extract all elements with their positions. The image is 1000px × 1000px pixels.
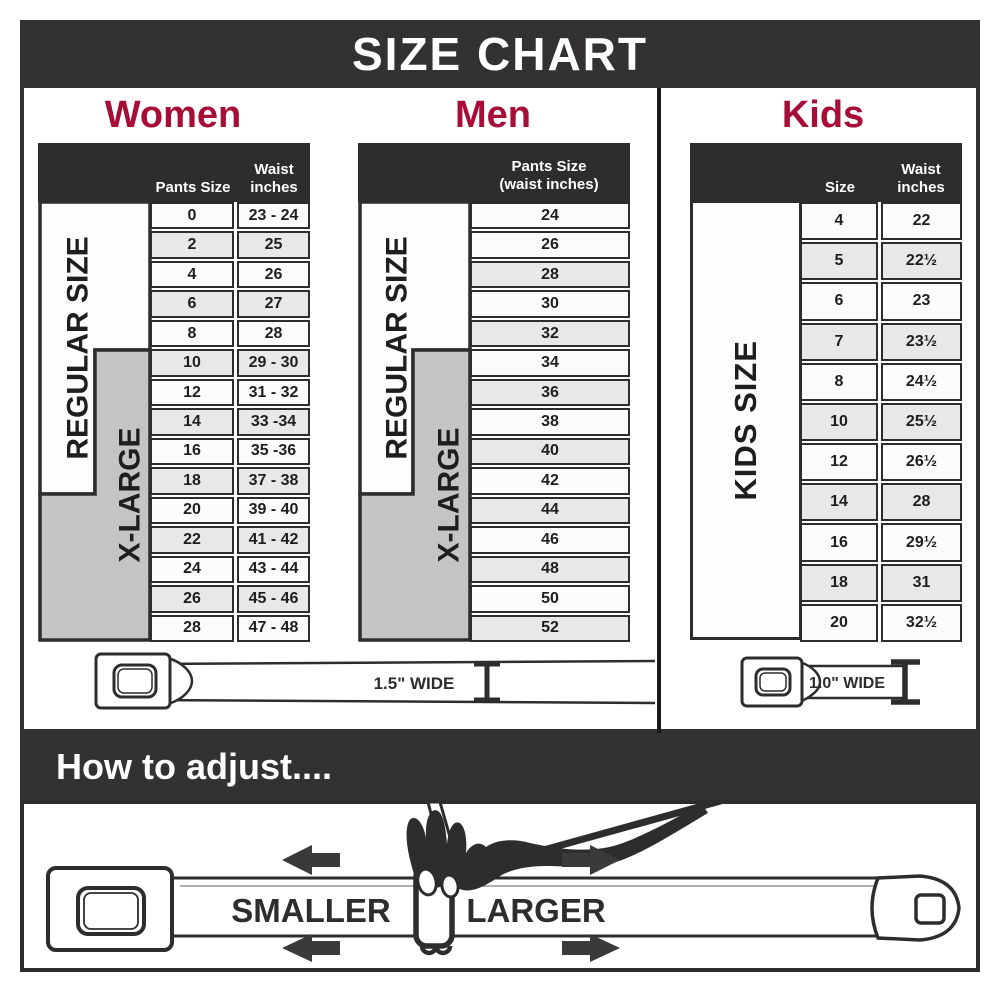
- table-cell: 8: [800, 363, 878, 401]
- kids-size-header: Size: [800, 179, 880, 197]
- table-cell: 25: [237, 231, 310, 258]
- table-cell: 16: [800, 523, 878, 561]
- table-cell: 24: [150, 556, 234, 583]
- table-cell: 31: [881, 564, 962, 602]
- table-cell: 46: [470, 526, 630, 553]
- adult-seatbelt-buckle-icon: [96, 654, 192, 708]
- table-cell: 20: [150, 497, 234, 524]
- table-cell: 47 - 48: [237, 615, 310, 642]
- page-title: SIZE CHART: [352, 27, 648, 81]
- arrow-right-bottom-icon: [562, 934, 620, 962]
- adult-belt-width-label: 1.5" WIDE: [374, 674, 455, 693]
- table-cell: 31 - 32: [237, 379, 310, 406]
- arrow-left-bottom-icon: [282, 934, 340, 962]
- table-cell: 41 - 42: [237, 526, 310, 553]
- table-cell: 39 - 40: [237, 497, 310, 524]
- table-cell: 24½: [881, 363, 962, 401]
- table-cell: 26: [470, 231, 630, 258]
- table-cell: 14: [800, 483, 878, 521]
- section-divider: [657, 88, 661, 733]
- table-cell: 43 - 44: [237, 556, 310, 583]
- table-cell: 42: [470, 467, 630, 494]
- how-to-adjust-banner: How to adjust....: [20, 733, 980, 800]
- women-xlarge-label: X-LARGE: [114, 428, 147, 563]
- table-cell: 28: [237, 320, 310, 347]
- table-cell: 24: [470, 202, 630, 229]
- table-cell: 6: [150, 290, 234, 317]
- women-table-header: Pants Size Waist inches: [38, 143, 310, 202]
- table-cell: 29 - 30: [237, 349, 310, 376]
- arrow-left-top-icon: [282, 845, 340, 875]
- table-cell: 22: [150, 526, 234, 553]
- table-cell: 36: [470, 379, 630, 406]
- table-cell: 33 -34: [237, 408, 310, 435]
- table-cell: 23: [881, 282, 962, 320]
- table-cell: 22½: [881, 242, 962, 280]
- men-table-header: Pants Size (waist inches): [358, 143, 630, 202]
- table-cell: 40: [470, 438, 630, 465]
- table-cell: 4: [150, 261, 234, 288]
- table-cell: 37 - 38: [237, 467, 310, 494]
- men-regular-size-label: REGULAR SIZE: [381, 236, 414, 459]
- table-cell: 35 -36: [237, 438, 310, 465]
- table-cell: 10: [150, 349, 234, 376]
- women-regular-size-label: REGULAR SIZE: [62, 236, 95, 459]
- men-size-table: 24 26 28 30 32 34 36 38 40 42 44 46 48 5…: [470, 202, 630, 642]
- table-cell: 14: [150, 408, 234, 435]
- size-chart-banner: SIZE CHART: [20, 20, 980, 88]
- table-cell: 6: [800, 282, 878, 320]
- table-cell: 25½: [881, 403, 962, 441]
- table-cell: 2: [150, 231, 234, 258]
- table-cell: 12: [800, 443, 878, 481]
- kids-table-header: Size Waist inches: [690, 143, 962, 202]
- table-cell: 23 - 24: [237, 202, 310, 229]
- kids-belt-illustration: 1.0" WIDE: [664, 648, 976, 728]
- men-section-heading: Men: [378, 94, 608, 137]
- table-cell: 29½: [881, 523, 962, 561]
- table-cell: 45 - 46: [237, 585, 310, 612]
- table-cell: 52: [470, 615, 630, 642]
- table-cell: 23½: [881, 323, 962, 361]
- women-size-range-labels: REGULAR SIZE X-LARGE: [38, 200, 152, 642]
- women-waist-header: Waist inches: [240, 161, 308, 197]
- table-cell: 34: [470, 349, 630, 376]
- table-cell: 26: [237, 261, 310, 288]
- adult-belt-illustration: 1.5" WIDE: [24, 648, 658, 728]
- how-to-adjust-title: How to adjust....: [56, 746, 332, 788]
- smaller-label: SMALLER: [231, 892, 391, 929]
- men-pants-size-header: Pants Size (waist inches): [470, 158, 628, 194]
- women-section-heading: Women: [58, 94, 288, 137]
- table-cell: 30: [470, 290, 630, 317]
- table-cell: 12: [150, 379, 234, 406]
- women-pants-size-header: Pants Size: [150, 179, 236, 197]
- table-cell: 38: [470, 408, 630, 435]
- kids-size-region: KIDS SIZE: [690, 200, 802, 640]
- table-cell: 8: [150, 320, 234, 347]
- size-chart-page: SIZE CHART Women Men Kids Pants Size Wai…: [0, 0, 1000, 1000]
- table-cell: 26: [150, 585, 234, 612]
- men-size-range-labels: REGULAR SIZE X-LARGE: [358, 200, 472, 642]
- table-cell: 16: [150, 438, 234, 465]
- kids-section-heading: Kids: [708, 94, 938, 137]
- table-cell: 20: [800, 604, 878, 642]
- women-size-table: 0 23 - 24 2 25 4 26 6 27 8 28 10 29 - 30…: [150, 202, 310, 642]
- table-cell: 28: [470, 261, 630, 288]
- adjust-illustration: SMALLER LARGER: [20, 800, 980, 972]
- table-cell: 32: [470, 320, 630, 347]
- larger-label: LARGER: [466, 892, 606, 929]
- table-cell: 28: [881, 483, 962, 521]
- kids-belt-width-label: 1.0" WIDE: [809, 675, 885, 692]
- adjust-seatbelt-buckle-icon: [48, 868, 172, 950]
- table-cell: 48: [470, 556, 630, 583]
- belt-tip-icon: [872, 876, 959, 940]
- table-cell: 28: [150, 615, 234, 642]
- table-cell: 22: [881, 202, 962, 240]
- table-cell: 32½: [881, 604, 962, 642]
- table-cell: 5: [800, 242, 878, 280]
- table-cell: 18: [800, 564, 878, 602]
- kids-waist-header: Waist inches: [882, 161, 960, 197]
- table-cell: 0: [150, 202, 234, 229]
- table-cell: 7: [800, 323, 878, 361]
- men-xlarge-label: X-LARGE: [433, 428, 466, 563]
- table-cell: 27: [237, 290, 310, 317]
- table-cell: 18: [150, 467, 234, 494]
- table-cell: 50: [470, 585, 630, 612]
- table-cell: 10: [800, 403, 878, 441]
- kids-size-table: 4 22 5 22½ 6 23 7 23½ 8 24½ 10 25½ 12 26…: [800, 202, 962, 642]
- table-cell: 4: [800, 202, 878, 240]
- table-cell: 44: [470, 497, 630, 524]
- kids-size-label: KIDS SIZE: [728, 340, 764, 501]
- table-cell: 26½: [881, 443, 962, 481]
